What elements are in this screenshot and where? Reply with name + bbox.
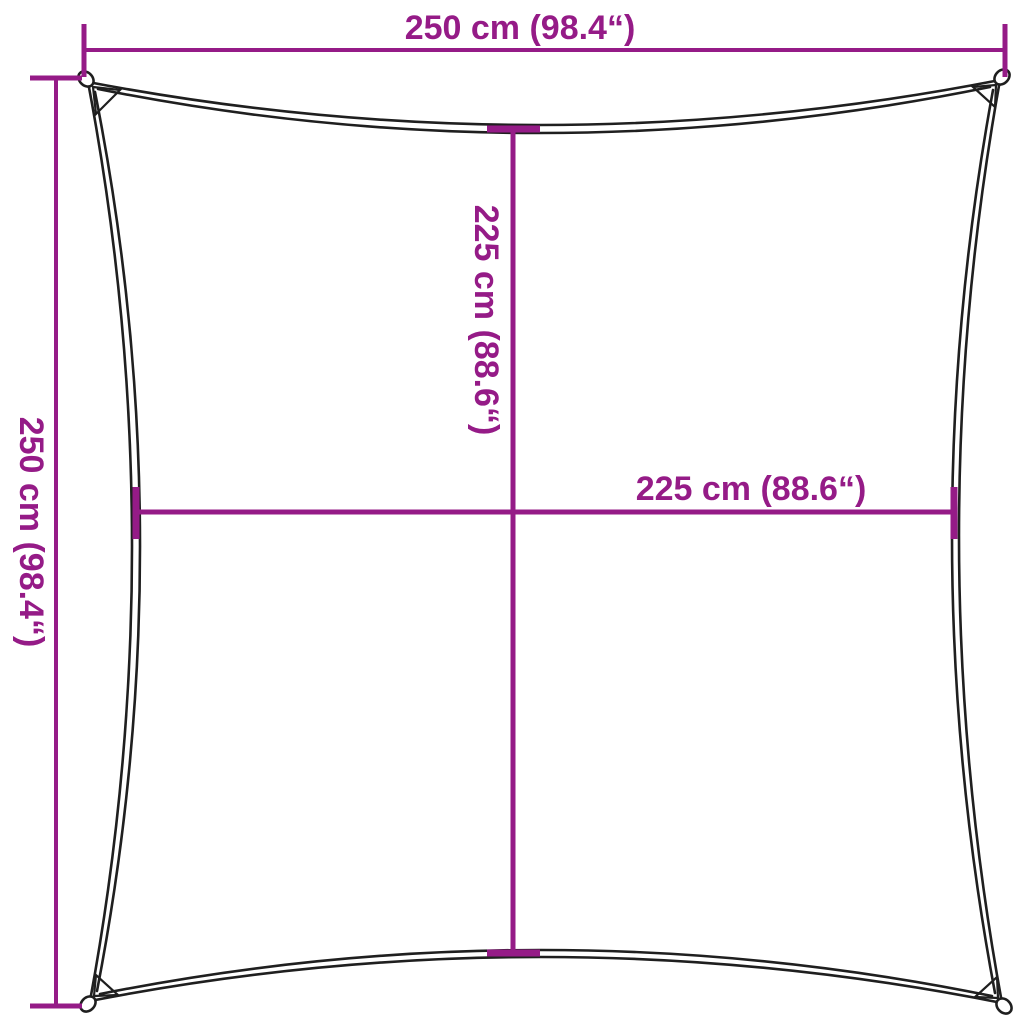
dimension-annotations-group	[30, 24, 1005, 1006]
sail-top-edge-outer	[88, 80, 1000, 125]
sail-left-edge-outer	[88, 82, 132, 1001]
sail-right-edge-outer	[959, 80, 1002, 1003]
sail-dimension-diagram: 250 cm (98.4“) 250 cm (98.4“) 225 cm (88…	[0, 0, 1024, 1024]
dimension-label-inner-vertical: 225 cm (88.6“)	[466, 120, 506, 520]
dimension-label-top-width: 250 cm (98.4“)	[320, 8, 720, 48]
sail-outline-group	[75, 66, 1014, 1016]
dimension-label-left-height: 250 cm (98.4“)	[11, 332, 51, 732]
sail-bottom-edge-outer	[90, 957, 1002, 1003]
dimension-label-inner-horizontal: 225 cm (88.6“)	[551, 469, 951, 509]
diagram-canvas	[0, 0, 1024, 1024]
